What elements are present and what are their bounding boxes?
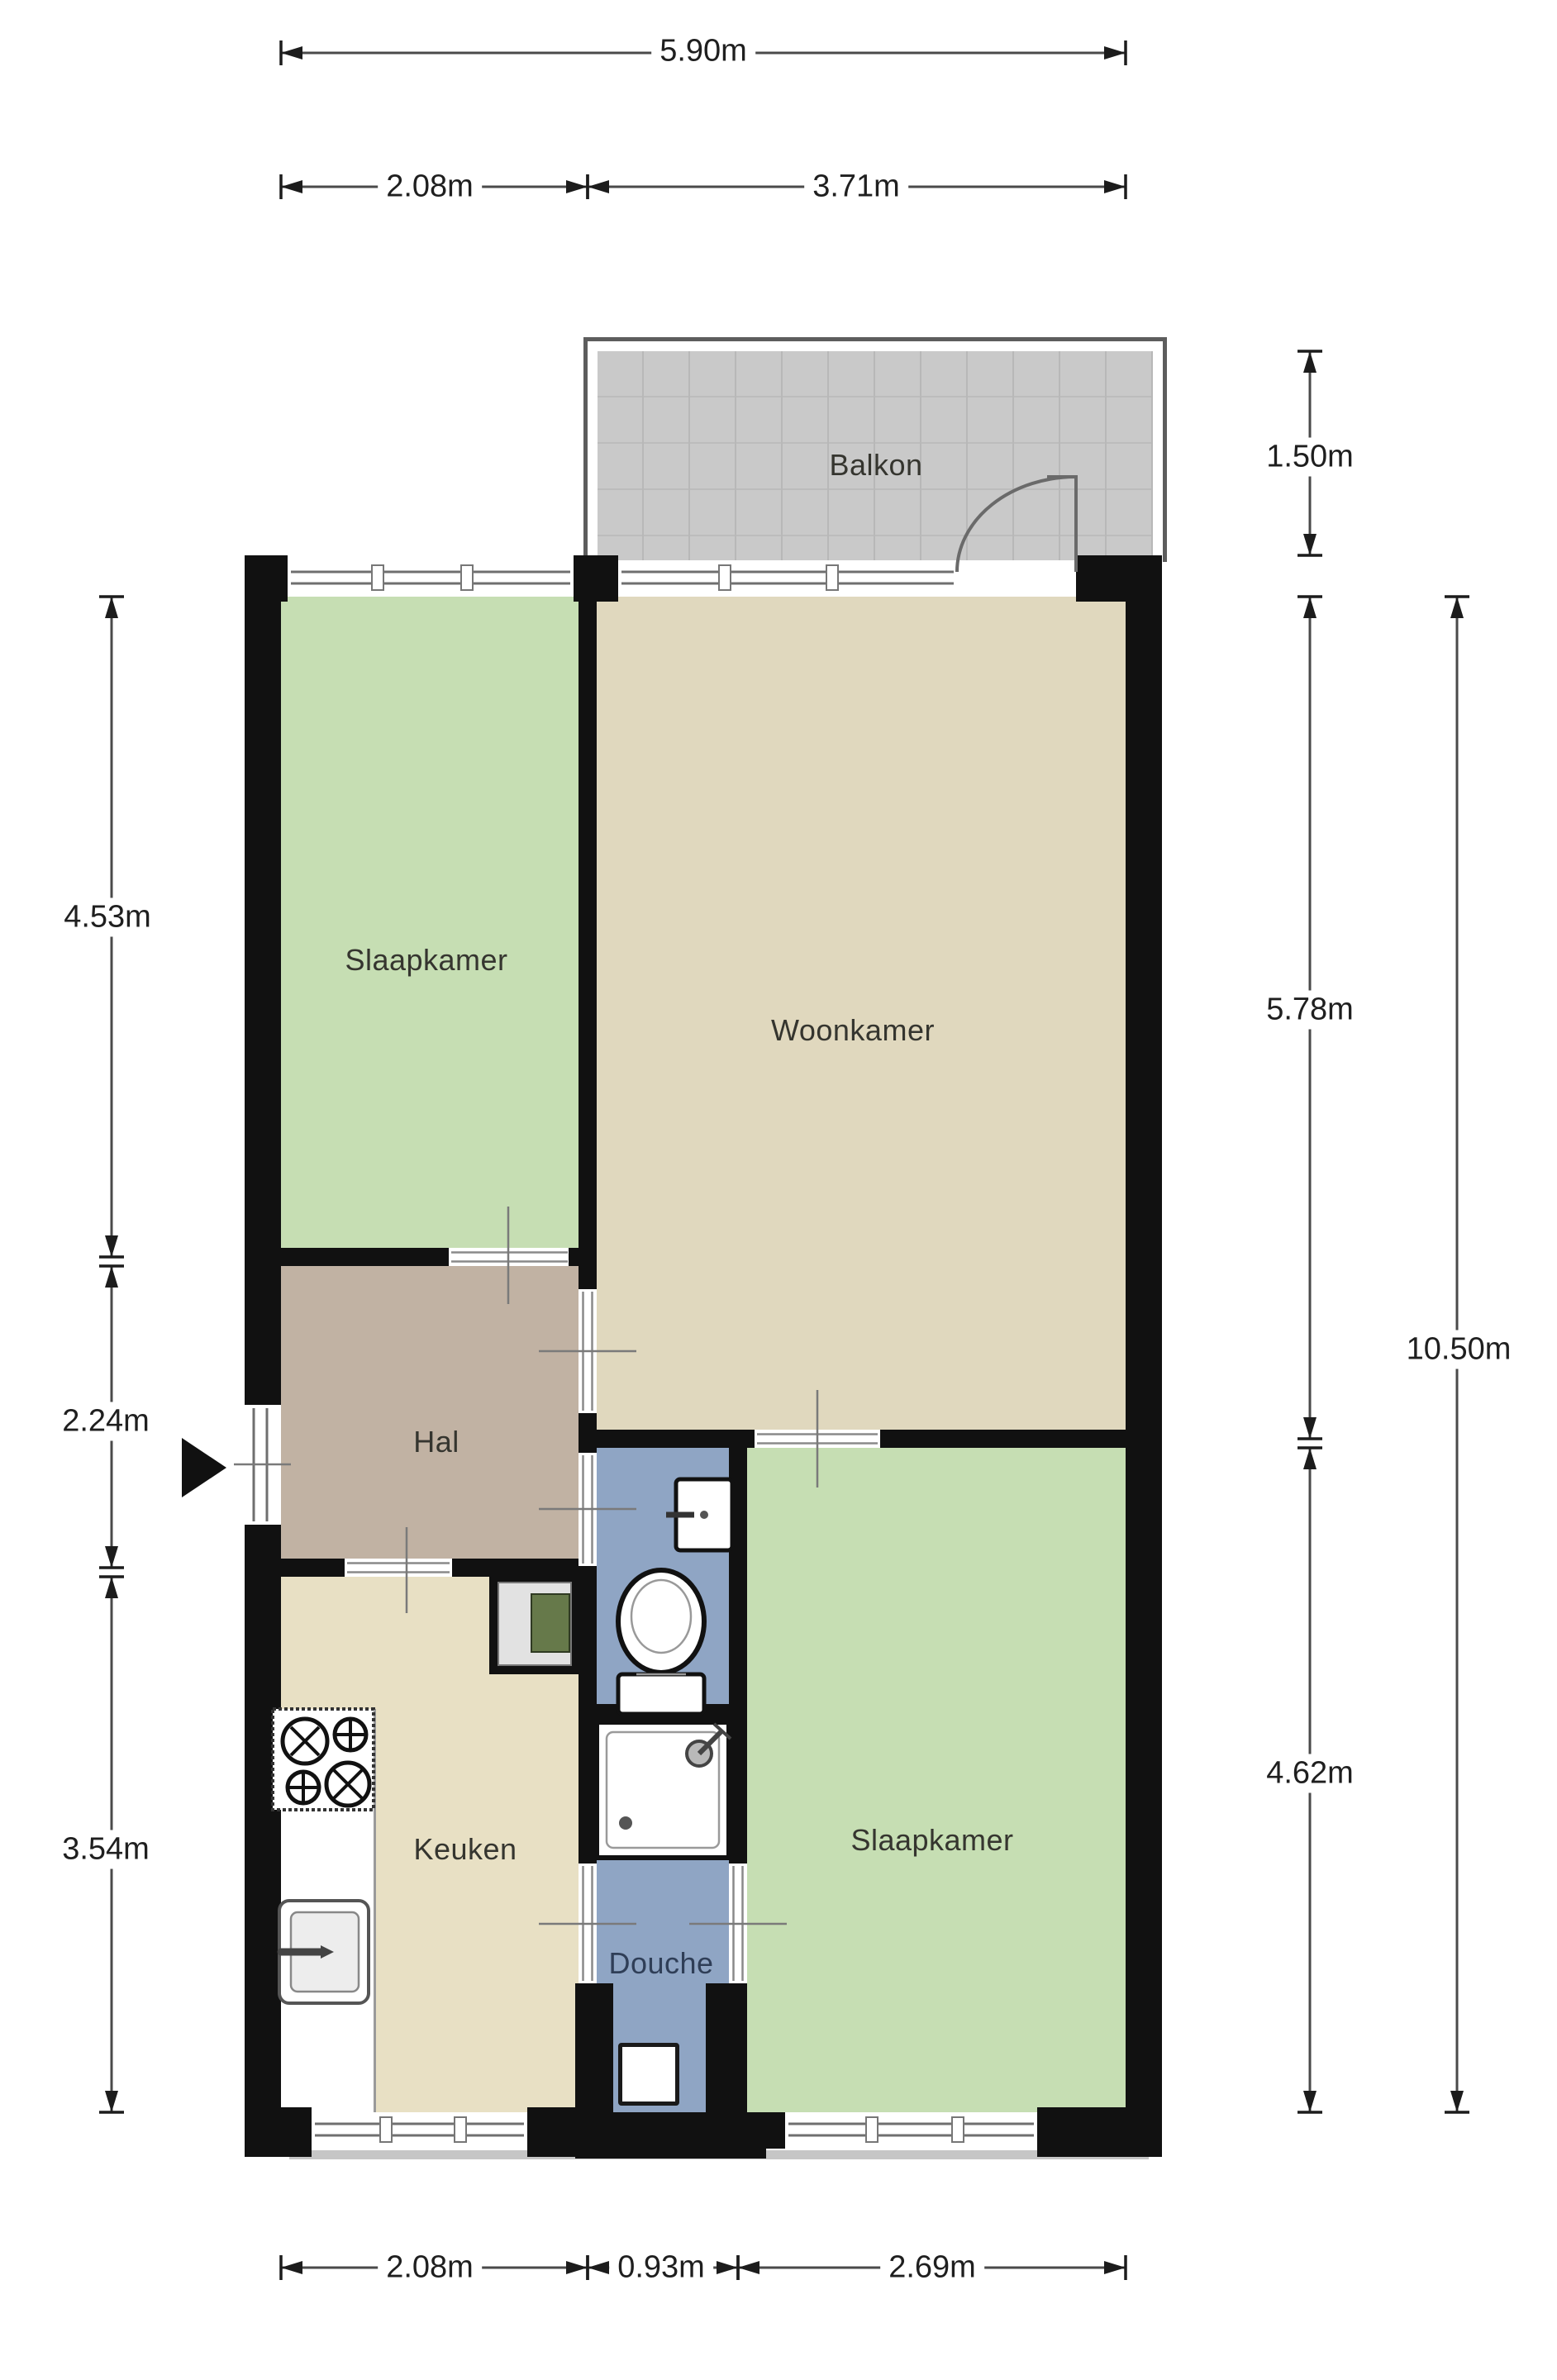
- door-kitchen-shower: [579, 1864, 597, 1983]
- door-balcony: [957, 560, 1076, 597]
- kitchen-counter: [281, 1709, 376, 2112]
- window-living-top: [618, 560, 957, 597]
- bedroom-bottom-label: Slaapkamer: [850, 1823, 1013, 1858]
- wall-toilet-shower-divider: [597, 1704, 729, 1722]
- bedroom-top-label: Slaapkamer: [345, 943, 507, 978]
- dim-right-upper: 5.78m: [1258, 991, 1362, 1030]
- shower-label: Douche: [608, 1946, 713, 1981]
- door-hall-living: [579, 1289, 597, 1413]
- door-living-bedroom: [755, 1430, 880, 1448]
- wall-right: [1126, 560, 1162, 2149]
- corner-top-center: [574, 555, 618, 602]
- dim-right-lower: 4.62m: [1258, 1754, 1362, 1793]
- front-door-opening: [245, 1405, 281, 1525]
- balcony-label: Balkon: [829, 448, 922, 483]
- kitchen-label: Keuken: [413, 1832, 517, 1867]
- meter-closet: [489, 1577, 579, 1674]
- wall-bedroom-hall-a: [281, 1248, 449, 1266]
- wall-shower-bedroom-lower: [706, 1983, 747, 2112]
- dim-right-total: 10.50m: [1398, 1330, 1520, 1369]
- corner-bottom-left: [245, 2107, 312, 2157]
- wall-toilet-bedroom: [729, 1448, 747, 1864]
- wall-shower-bottom-block: [575, 2112, 766, 2159]
- window-bedroom-bottom: [785, 2112, 1037, 2149]
- dim-left-lower: 3.54m: [54, 1830, 158, 1869]
- dim-left-middle: 2.24m: [54, 1402, 158, 1441]
- room-bedroom-top: [281, 597, 588, 1257]
- entrance-arrow-icon: [182, 1438, 226, 1497]
- wall-bedroom-living: [579, 597, 597, 1266]
- wall-hall-living-stub-top: [579, 1266, 597, 1289]
- living-label: Woonkamer: [771, 1013, 935, 1048]
- wall-shower-kitchen-lower: [575, 1983, 613, 2112]
- wall-left: [245, 560, 281, 2149]
- dim-bottom-left: 2.08m: [378, 2249, 482, 2287]
- dim-top-right: 3.71m: [804, 168, 908, 207]
- door-hall-toilet: [579, 1453, 597, 1566]
- wall-hall-kitchen-a: [281, 1559, 345, 1577]
- corner-bottom-mid: [527, 2107, 579, 2157]
- corner-bottom-right: [1037, 2107, 1162, 2157]
- shower-vent-box: [618, 2043, 679, 2106]
- corner-top-left: [245, 555, 288, 602]
- wall-bedroom-hall-b: [569, 1248, 597, 1266]
- door-bedroom-hall: [449, 1248, 569, 1266]
- dim-bottom-right: 2.69m: [880, 2249, 984, 2287]
- wall-hall-toilet-stub: [579, 1566, 597, 1864]
- dim-balcony-height: 1.50m: [1258, 438, 1362, 477]
- wall-living-bedroom-b: [880, 1430, 1126, 1448]
- room-hall: [281, 1257, 588, 1568]
- dim-left-upper: 4.53m: [55, 898, 160, 937]
- window-kitchen-bottom: [312, 2112, 527, 2149]
- wall-living-toilet: [597, 1430, 755, 1448]
- dim-bottom-middle: 0.93m: [609, 2249, 713, 2287]
- room-bedroom-bottom: [738, 1439, 1126, 2112]
- dim-top-total: 5.90m: [651, 32, 755, 71]
- window-bedroom-top: [288, 560, 574, 597]
- floor-plan: Balkon Slaapkamer Woonkamer Hal Keuken D…: [0, 0, 1557, 2380]
- corner-top-right: [1076, 555, 1162, 602]
- wall-hall-living-stub-mid: [579, 1413, 597, 1453]
- wall-hall-kitchen-b: [452, 1559, 597, 1577]
- door-hall-kitchen: [345, 1559, 452, 1577]
- door-shower-bedroom: [729, 1864, 747, 1983]
- hall-label: Hal: [413, 1425, 459, 1459]
- dim-top-left: 2.08m: [378, 168, 482, 207]
- meter-panel: [531, 1593, 570, 1653]
